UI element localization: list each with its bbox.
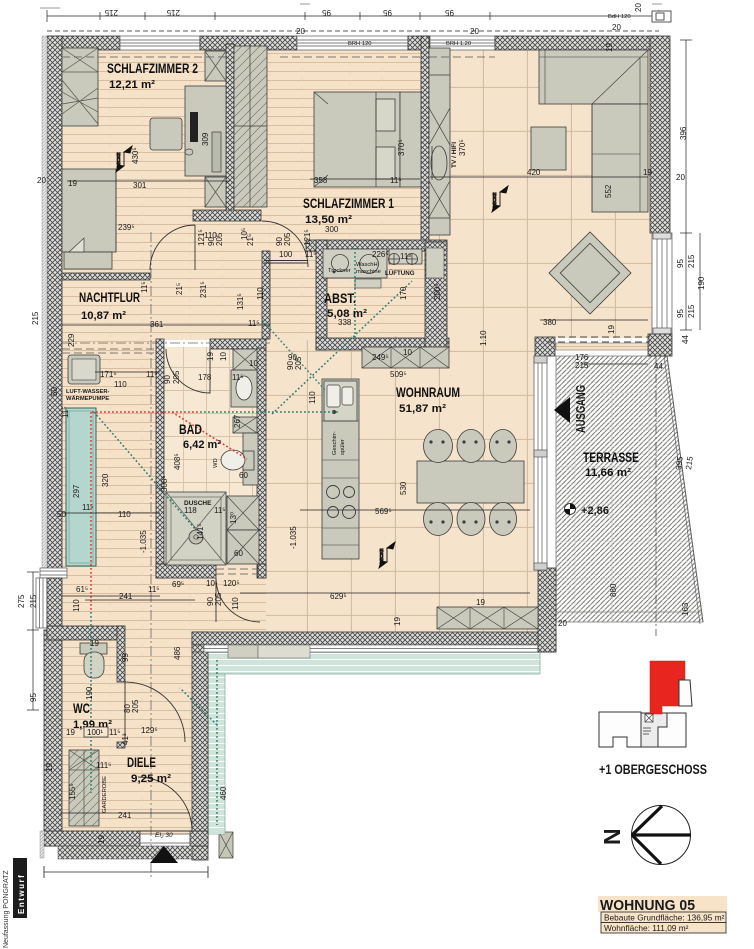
svg-text:11⁵: 11⁵ bbox=[390, 176, 402, 185]
svg-text:110: 110 bbox=[231, 597, 240, 610]
svg-text:190: 190 bbox=[85, 686, 94, 700]
svg-text:11⁵: 11⁵ bbox=[232, 373, 244, 382]
svg-text:19: 19 bbox=[45, 763, 54, 772]
svg-text:121⁵: 121⁵ bbox=[303, 229, 312, 246]
svg-text:215: 215 bbox=[104, 8, 118, 17]
svg-text:19: 19 bbox=[66, 728, 75, 737]
svg-text:178: 178 bbox=[198, 373, 212, 382]
svg-text:10: 10 bbox=[219, 352, 228, 361]
svg-text:LÜFTUNG: LÜFTUNG bbox=[385, 270, 415, 277]
svg-text:205: 205 bbox=[214, 592, 223, 606]
svg-text:370⁵: 370⁵ bbox=[397, 139, 406, 156]
svg-text:205: 205 bbox=[283, 232, 292, 246]
svg-text:Entwurf: Entwurf bbox=[17, 874, 26, 914]
svg-text:50: 50 bbox=[57, 510, 66, 519]
svg-text:241: 241 bbox=[118, 811, 132, 820]
svg-text:N: N bbox=[599, 828, 625, 845]
svg-text:Geschirr-: Geschirr- bbox=[332, 431, 338, 455]
svg-text:DECKE: DECKE bbox=[492, 192, 497, 208]
svg-text:95: 95 bbox=[29, 693, 38, 702]
svg-text:11⁵: 11⁵ bbox=[146, 370, 158, 379]
svg-text:110: 110 bbox=[72, 599, 81, 612]
svg-text:ABST.: ABST. bbox=[324, 291, 356, 306]
svg-text:10,87 m²: 10,87 m² bbox=[81, 310, 126, 322]
svg-text:110: 110 bbox=[114, 380, 127, 389]
svg-text:19: 19 bbox=[90, 639, 99, 648]
svg-text:-1.035: -1.035 bbox=[289, 526, 298, 549]
svg-text:51,87 m²: 51,87 m² bbox=[399, 403, 446, 415]
svg-text:163: 163 bbox=[681, 602, 690, 616]
svg-text:205: 205 bbox=[294, 356, 303, 370]
svg-text:420: 420 bbox=[527, 168, 541, 177]
svg-text:100: 100 bbox=[279, 250, 293, 259]
svg-text:226⁵: 226⁵ bbox=[372, 250, 389, 259]
svg-text:+1 OBERGESCHOSS: +1 OBERGESCHOSS bbox=[599, 762, 707, 777]
svg-text:215: 215 bbox=[687, 304, 696, 318]
svg-text:11⁵: 11⁵ bbox=[82, 503, 94, 512]
svg-text:215: 215 bbox=[29, 594, 38, 608]
svg-text:190: 190 bbox=[697, 276, 706, 290]
svg-text:11⁵: 11⁵ bbox=[148, 585, 160, 594]
svg-text:TV / HIFI: TV / HIFI bbox=[451, 142, 458, 168]
svg-text:20: 20 bbox=[558, 619, 567, 628]
svg-text:267: 267 bbox=[233, 414, 242, 428]
svg-text:19: 19 bbox=[605, 43, 614, 52]
svg-text:12,21 m²: 12,21 m² bbox=[109, 79, 155, 91]
svg-text:20: 20 bbox=[676, 173, 685, 182]
svg-text:DIELE: DIELE bbox=[127, 755, 156, 770]
svg-text:530: 530 bbox=[399, 481, 408, 495]
svg-text:WOHNRAUM: WOHNRAUM bbox=[396, 385, 460, 400]
svg-text:110: 110 bbox=[256, 287, 265, 300]
svg-text:WaschH: WaschH bbox=[356, 262, 378, 268]
svg-text:11⁵: 11⁵ bbox=[109, 728, 121, 737]
svg-text:61⁵: 61⁵ bbox=[76, 585, 88, 594]
svg-text:380: 380 bbox=[543, 318, 557, 327]
svg-text:95: 95 bbox=[676, 259, 685, 268]
svg-text:6,42 m²: 6,42 m² bbox=[183, 439, 221, 451]
svg-text:11,66 m²: 11,66 m² bbox=[585, 467, 631, 479]
svg-text:170: 170 bbox=[399, 286, 408, 300]
svg-text:200⁵: 200⁵ bbox=[433, 283, 442, 300]
svg-text:361: 361 bbox=[150, 320, 164, 329]
svg-text:-1.035: -1.035 bbox=[139, 530, 148, 553]
svg-text:155⁵: 155⁵ bbox=[68, 783, 77, 800]
svg-text:141⁵: 141⁵ bbox=[196, 523, 205, 540]
svg-text:DECKE: DECKE bbox=[116, 152, 121, 168]
svg-text:95: 95 bbox=[445, 8, 454, 17]
svg-text:569⁵: 569⁵ bbox=[375, 507, 392, 516]
svg-text:69⁵: 69⁵ bbox=[172, 580, 184, 589]
svg-text:NACHTFLUR: NACHTFLUR bbox=[79, 290, 140, 305]
svg-text:20: 20 bbox=[612, 23, 621, 32]
svg-text:44: 44 bbox=[681, 335, 690, 344]
svg-text:44: 44 bbox=[654, 362, 663, 371]
svg-text:320: 320 bbox=[101, 473, 110, 487]
svg-text:309: 309 bbox=[201, 132, 210, 146]
svg-text:AUSGANG: AUSGANG bbox=[573, 385, 588, 433]
svg-text:Neufassung PONGRATZ: Neufassung PONGRATZ bbox=[3, 870, 10, 948]
svg-text:275: 275 bbox=[17, 594, 26, 608]
svg-text:DECKE: DECKE bbox=[379, 548, 384, 564]
svg-text:880: 880 bbox=[609, 583, 618, 597]
svg-text:Bebaute Grundfläche: 136,95 m²: Bebaute Grundfläche: 136,95 m² bbox=[604, 913, 725, 923]
svg-text:249⁵: 249⁵ bbox=[372, 353, 389, 362]
svg-text:111⁵: 111⁵ bbox=[96, 761, 111, 770]
svg-text:TERRASSE: TERRASSE bbox=[583, 450, 639, 465]
svg-text:205: 205 bbox=[172, 370, 181, 384]
svg-text:205: 205 bbox=[215, 232, 224, 246]
svg-text:13⁰: 13⁰ bbox=[229, 512, 238, 524]
svg-text:19: 19 bbox=[97, 835, 106, 844]
svg-text:19: 19 bbox=[476, 598, 485, 607]
svg-text:BRH 120: BRH 120 bbox=[348, 41, 372, 47]
svg-text:20: 20 bbox=[37, 176, 46, 185]
svg-text:430⁵: 430⁵ bbox=[131, 147, 140, 164]
svg-text:118: 118 bbox=[184, 506, 197, 515]
svg-text:215: 215 bbox=[687, 254, 696, 268]
svg-text:215: 215 bbox=[166, 8, 180, 17]
svg-text:maschine: maschine bbox=[356, 269, 381, 275]
svg-text:19: 19 bbox=[393, 617, 402, 626]
svg-text:297: 297 bbox=[72, 484, 81, 498]
svg-text:BRH 1.20: BRH 1.20 bbox=[446, 41, 471, 47]
svg-text:+2,86: +2,86 bbox=[581, 505, 609, 517]
svg-text:11⁵: 11⁵ bbox=[61, 406, 70, 418]
svg-text:300: 300 bbox=[325, 225, 339, 234]
svg-text:396: 396 bbox=[679, 126, 688, 140]
svg-text:11⁵: 11⁵ bbox=[214, 506, 226, 515]
svg-text:205: 205 bbox=[131, 699, 140, 713]
svg-text:121⁵: 121⁵ bbox=[197, 229, 206, 246]
svg-text:50: 50 bbox=[50, 387, 59, 396]
svg-text:509⁵: 509⁵ bbox=[390, 370, 407, 379]
svg-text:10: 10 bbox=[403, 348, 412, 357]
svg-text:20: 20 bbox=[634, 3, 643, 12]
svg-text:129⁵: 129⁵ bbox=[141, 726, 158, 735]
svg-text:60: 60 bbox=[239, 471, 248, 480]
svg-text:552: 552 bbox=[604, 184, 613, 198]
svg-text:21⁵: 21⁵ bbox=[246, 234, 255, 246]
svg-text:21⁵: 21⁵ bbox=[175, 283, 184, 295]
svg-text:10: 10 bbox=[249, 359, 258, 368]
svg-text:spüler: spüler bbox=[340, 439, 346, 455]
svg-text:9,25 m²: 9,25 m² bbox=[131, 773, 171, 785]
svg-text:19: 19 bbox=[607, 325, 616, 334]
svg-text:19: 19 bbox=[206, 352, 215, 361]
svg-text:SCHLAFZIMMER 2: SCHLAFZIMMER 2 bbox=[107, 61, 198, 76]
svg-text:WD: WD bbox=[213, 458, 219, 468]
svg-text:WÄRMEPUMPE: WÄRMEPUMPE bbox=[66, 395, 109, 402]
svg-text:215: 215 bbox=[31, 311, 40, 325]
svg-text:90: 90 bbox=[163, 375, 172, 384]
svg-text:EI₂ 30: EI₂ 30 bbox=[155, 832, 173, 839]
svg-text:11⁵: 11⁵ bbox=[140, 281, 149, 293]
svg-text:308⁵: 308⁵ bbox=[160, 475, 169, 492]
svg-text:215: 215 bbox=[575, 361, 589, 370]
svg-text:Wohnfläche: 111,09 m²: Wohnfläche: 111,09 m² bbox=[604, 923, 689, 933]
svg-text:370⁵: 370⁵ bbox=[458, 139, 467, 156]
svg-text:11⁵: 11⁵ bbox=[248, 319, 260, 328]
svg-text:WC: WC bbox=[73, 701, 90, 716]
svg-text:41³: 41³ bbox=[121, 733, 130, 745]
svg-text:460: 460 bbox=[219, 786, 228, 800]
svg-text:60: 60 bbox=[234, 549, 243, 558]
svg-text:95: 95 bbox=[676, 309, 685, 318]
svg-text:20: 20 bbox=[296, 27, 305, 36]
svg-text:231⁵: 231⁵ bbox=[199, 281, 208, 298]
svg-text:Trockner: Trockner bbox=[328, 268, 351, 274]
svg-text:SCHLAFZIMMER 1: SCHLAFZIMMER 1 bbox=[303, 196, 394, 211]
svg-text:10¹: 10¹ bbox=[206, 579, 218, 588]
svg-text:99: 99 bbox=[121, 653, 130, 662]
svg-text:338: 338 bbox=[338, 318, 352, 327]
svg-text:19: 19 bbox=[68, 179, 77, 188]
svg-text:95: 95 bbox=[322, 8, 331, 17]
svg-text:131⁵: 131⁵ bbox=[236, 293, 245, 310]
svg-text:171⁵: 171⁵ bbox=[100, 370, 117, 379]
svg-text:239⁵: 239⁵ bbox=[118, 223, 135, 232]
svg-text:110: 110 bbox=[308, 391, 317, 404]
svg-text:301: 301 bbox=[133, 181, 147, 190]
svg-text:11³: 11³ bbox=[400, 252, 411, 261]
svg-text:BdH 120: BdH 120 bbox=[608, 14, 631, 20]
svg-text:358: 358 bbox=[314, 176, 328, 185]
svg-text:19: 19 bbox=[643, 168, 652, 177]
svg-text:LUFT-WASSER-: LUFT-WASSER- bbox=[66, 389, 110, 395]
svg-text:BAD: BAD bbox=[179, 422, 202, 437]
svg-text:120⁵: 120⁵ bbox=[223, 579, 240, 588]
svg-text:GARDEROBE: GARDEROBE bbox=[102, 776, 108, 813]
svg-text:20: 20 bbox=[470, 27, 479, 36]
svg-text:95: 95 bbox=[383, 8, 392, 17]
svg-text:11⁵: 11⁵ bbox=[305, 250, 317, 259]
svg-text:229: 229 bbox=[67, 333, 76, 347]
svg-text:100¹: 100¹ bbox=[87, 728, 103, 737]
svg-text:110: 110 bbox=[118, 510, 131, 519]
svg-text:215: 215 bbox=[684, 455, 695, 470]
svg-text:1.10: 1.10 bbox=[479, 330, 488, 346]
svg-text:486: 486 bbox=[173, 646, 182, 660]
svg-text:408⁵: 408⁵ bbox=[173, 453, 182, 470]
